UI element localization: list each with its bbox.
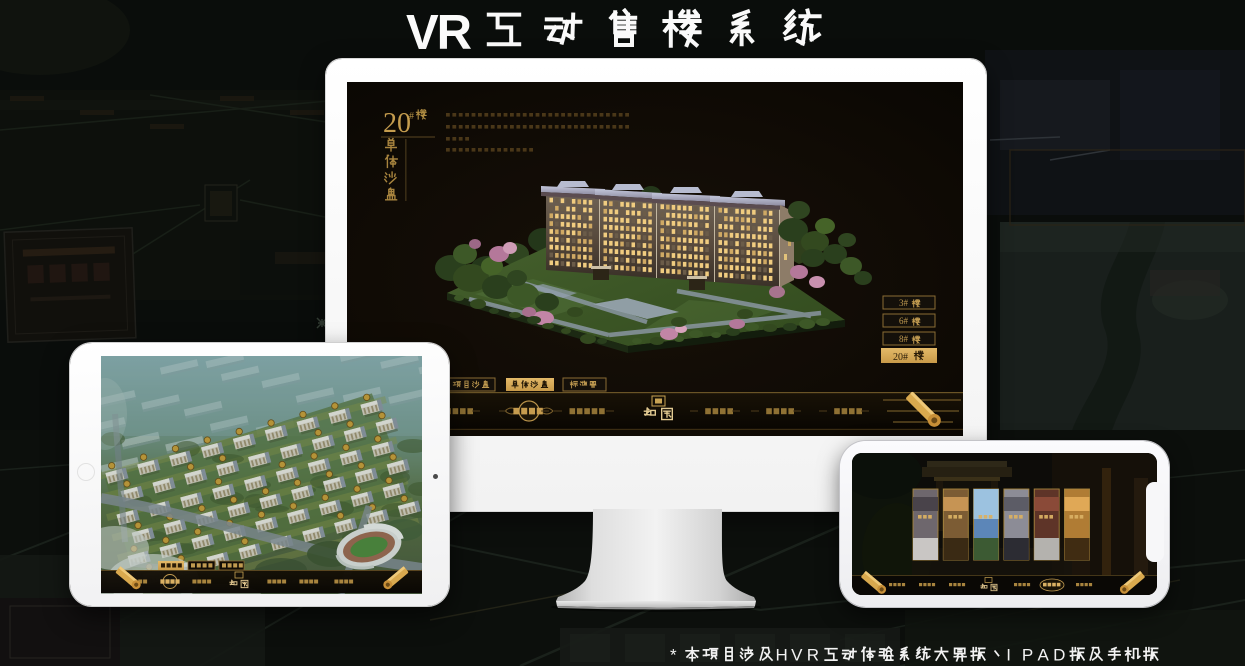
svg-text:*: *	[670, 646, 677, 665]
svg-text:3#: 3#	[899, 298, 909, 308]
svg-text:6#: 6#	[899, 316, 909, 326]
svg-text:20#: 20#	[893, 352, 908, 363]
svg-text:D: D	[1053, 646, 1065, 665]
svg-text:R: R	[807, 646, 819, 665]
svg-text:8#: 8#	[899, 334, 909, 344]
svg-text:P: P	[1022, 646, 1033, 665]
svg-text:#: #	[409, 111, 414, 122]
svg-text:I: I	[1006, 646, 1011, 665]
svg-text:VR: VR	[406, 8, 472, 60]
svg-text:V: V	[791, 646, 803, 665]
svg-text:20: 20	[383, 108, 411, 139]
svg-text:H: H	[776, 646, 788, 665]
svg-text:A: A	[1038, 646, 1050, 665]
